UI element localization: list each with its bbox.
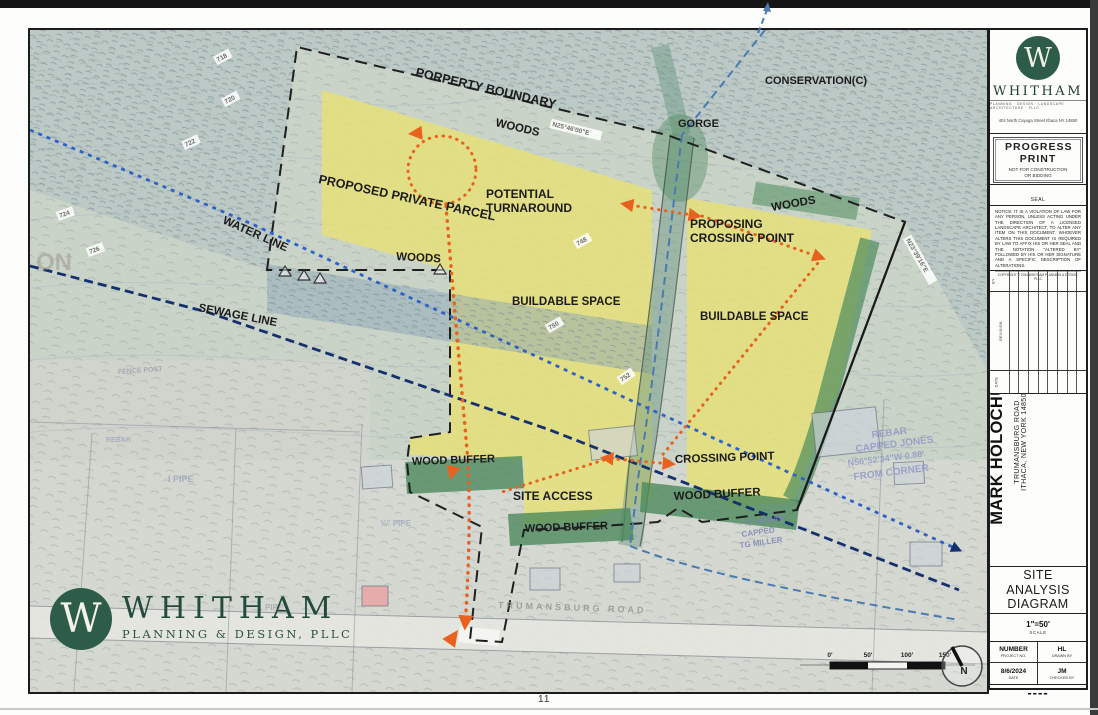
ghost-survey-text: ¾" PIPE [380,519,412,528]
titleblock-firm-tagline: PLANNING · DESIGN · LANDSCAPE ARCHITECTU… [990,100,1086,110]
scale-label: SCALE [1029,630,1046,635]
viewer-right-edge [1090,0,1098,715]
north-arrow: N [942,646,982,686]
checked-by-cell: JM CHECKED BY [1038,663,1086,684]
sheet-title-section: SITE ANALYSIS DIAGRAM [990,567,1086,614]
client-name: MARK HOLOCHUCK [990,394,1007,525]
seal-area: SEAL [990,185,1086,206]
map-label: WOODS [396,251,442,265]
revision-date-band: DATE [990,371,1086,393]
sheet: ONREBARCAPPED JONESN56°52'34"W 0.88'FROM… [0,0,1098,715]
project-city: ITHACA, NEW YORK 14850 [1021,394,1028,491]
sheet-number: ---- [1027,685,1048,700]
date-cell: 8/6/2024 DATE [990,663,1038,684]
drawn-by-cell: HL DRAWN BY [1038,642,1086,663]
sheet-title: SITE ANALYSIS DIAGRAM [993,568,1083,611]
revision-desc-band: REVISION [990,292,1086,371]
map-label: SITE ACCESS [513,489,593,503]
footer-firm-tagline: PLANNING & DESIGN, PLLC [122,627,352,641]
titleblock-monogram-icon: W [1016,36,1060,80]
scale-section: 1"=50' SCALE [990,614,1086,642]
seal-label: SEAL [1031,197,1046,205]
title-block: W WHITHAM PLANNING · DESIGN · LANDSCAPE … [988,28,1088,690]
meta-grid: NUMBER PROJECT NO. HL DRAWN BY 8/6/2024 … [990,642,1086,685]
map-label: BUILDABLE SPACE [700,311,809,323]
scale-value: 1"=50' [1026,620,1050,629]
progress-print-title: PROGRESS PRINT [1005,142,1071,165]
project-title-section: HOLOCHUCK HOUSING MARK HOLOCHUCK TRUMANS… [990,394,1086,567]
titleblock-firm-name: WHITHAM [993,84,1083,99]
ghost-survey-text: REBAR [106,437,131,444]
ghost-survey-text: I PIPE [168,474,194,484]
north-label: N [960,666,967,677]
viewer-top-bar [0,0,1098,8]
map-label: BUILDABLE SPACE [512,296,621,308]
progress-print-stamp: PROGRESS PRINT NOT FOR CONSTRUCTION OR B… [990,134,1086,185]
scalebar-tick-label: 0' [827,652,833,659]
scalebar-tick-label: 50' [864,652,873,659]
progress-print-subtitle: NOT FOR CONSTRUCTION OR BIDDING [1008,167,1068,178]
sheet-number-section: ---- [990,685,1086,700]
scalebar-tick-label: 100' [901,652,914,659]
map-label: CONSERVATION(C) [765,75,867,87]
project-street: TRUMANSBURG ROAD [1014,400,1021,483]
revision-table: BY REVISION DATE [990,271,1086,394]
legal-notice: NOTICE: IT IS A VIOLATION OF LAW FOR ANY… [990,206,1086,271]
whitham-monogram-icon: W [50,588,112,650]
titleblock-address: 404 North Cayuga Street Ithaca NY 14850 [999,118,1078,123]
pink-building [362,586,388,606]
revision-by-band: BY [990,271,1086,292]
map-label: GORGE [678,118,719,130]
footer-logo: W WHITHAM PLANNING & DESIGN, PLLC [50,588,352,650]
page-number: 11 [538,694,550,705]
ghost-survey-text: ON [36,249,72,276]
notice-text: NOTICE: IT IS A VIOLATION OF LAW FOR ANY… [995,209,1081,268]
sheet-bottom-edge [0,708,1098,710]
titleblock-logo-section: W WHITHAM PLANNING · DESIGN · LANDSCAPE … [990,30,1086,134]
footer-firm-name: WHITHAM [122,594,352,624]
project-no-cell: NUMBER PROJECT NO. [990,642,1038,663]
